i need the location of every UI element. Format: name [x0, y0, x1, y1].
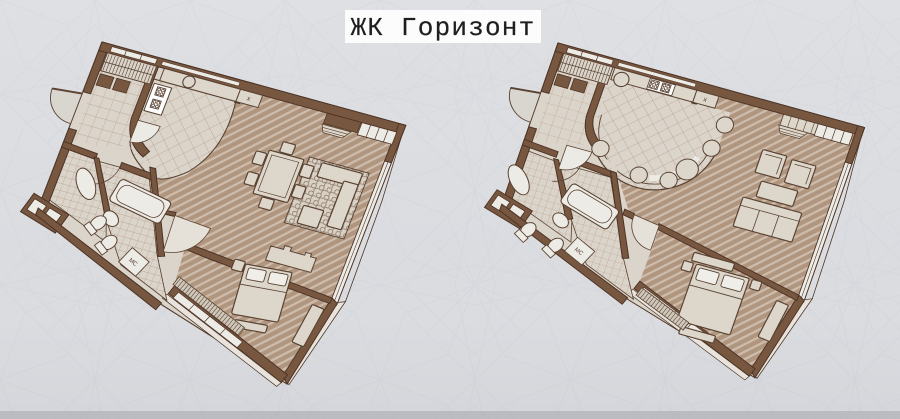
svg-text:ЖК Горизонт: ЖК Горизонт	[351, 13, 536, 43]
